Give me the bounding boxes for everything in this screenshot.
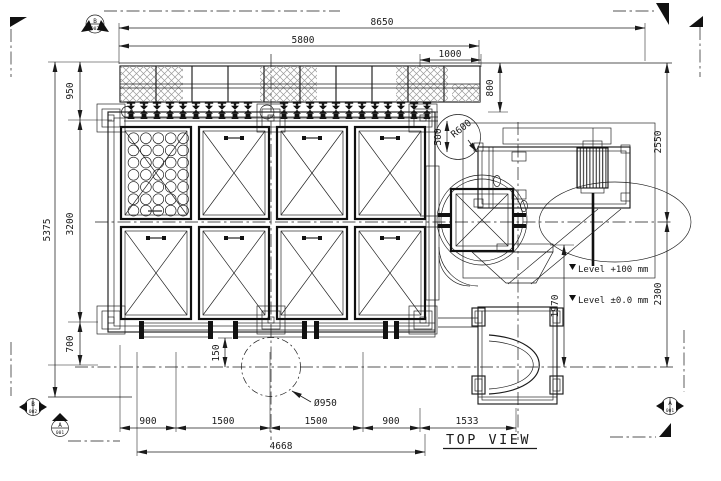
dim-bottom-seg4: 900 [382,416,399,427]
dim-left-total: 5375 [42,219,53,242]
discharge-frame [438,307,563,404]
base-beam [139,321,213,339]
tank-cell [199,127,269,219]
dim-top-bay: 1000 [439,49,462,60]
section-letter: B [93,18,97,25]
section-number: 001 [666,408,675,414]
dim-top-platform: 5800 [292,35,315,46]
section-letter: A [668,400,672,407]
tank-cell [121,227,191,319]
section-marker-bottom-left-inner: A 001 [52,413,69,437]
section-marker-top-left: B 002 [81,15,109,33]
dimensions-top: 8650 5800 1000 [119,17,645,67]
section-number: 001 [56,430,65,436]
drawing-sheet: B 002 B 002 A 001 A 001 [0,0,721,481]
walkway-platform [119,63,672,102]
level-marker-icon [569,264,576,270]
dim-r600-label: R600 [449,117,474,140]
dim-bottom-seg1: 900 [139,416,156,427]
tank-cell [199,227,269,319]
tank-cell [355,227,425,319]
section-letter: B [31,401,35,408]
level-upper-label: Level +100 mm [578,265,648,275]
view-title: TOP VIEW [443,432,537,449]
dim-pipe-diameter: Ø950 [314,398,337,409]
dim-right-gap: 500 [433,128,444,145]
bearing-block [512,152,526,161]
section-marker-bottom-left-outer: B 002 [19,399,47,416]
level-lower-label: Level ±0.0 mm [578,296,648,306]
dim-top-overall: 8650 [371,17,394,28]
section-number: 002 [91,26,100,32]
dim-bottom-seg3: 1500 [305,416,328,427]
dim-bottom-total: 4668 [270,441,293,452]
dim-right-upper: 2550 [653,130,664,153]
dim-bottom-seg2: 1500 [212,416,235,427]
dim-bottom-offset: 150 [211,344,222,361]
dim-left-bottom: 700 [65,335,76,352]
tank-cell-perforated [121,127,191,219]
grating-hatch [452,84,480,102]
fold-flag-top-right-2 [689,16,703,27]
equipment-skid [420,115,691,405]
dim-right-lower: 2300 [653,282,664,305]
fold-flag-bottom-right [659,423,671,437]
dim-left-mid: 3200 [65,212,76,235]
fold-flag-top-right [656,3,669,25]
dim-bottom-seg5: 1533 [456,416,479,427]
base-beam [314,321,388,339]
section-letter: A [58,422,62,429]
cover-plate [503,128,611,144]
circular-unit [420,175,527,265]
technical-drawing-canvas: B 002 B 002 A 001 A 001 [0,0,721,481]
motor [577,128,608,266]
section-number: 002 [29,409,38,415]
fold-flag-top-left [10,17,27,27]
tank-cell [277,127,347,219]
level-marker-icon [569,295,576,301]
dim-right-frame: 1970 [550,294,561,317]
level-annotations: Level +100 mm Level ±0.0 mm [569,264,648,306]
base-beam [233,321,307,339]
tank-cell [355,127,425,219]
view-title-label: TOP VIEW [446,432,531,448]
main-tank [97,104,437,334]
tank-cell [277,227,347,319]
section-marker-right: A 001 [656,398,684,415]
wall-hatch-strip [426,166,439,300]
dim-right-walkway: 800 [485,79,496,96]
dim-left-top: 950 [65,82,76,99]
